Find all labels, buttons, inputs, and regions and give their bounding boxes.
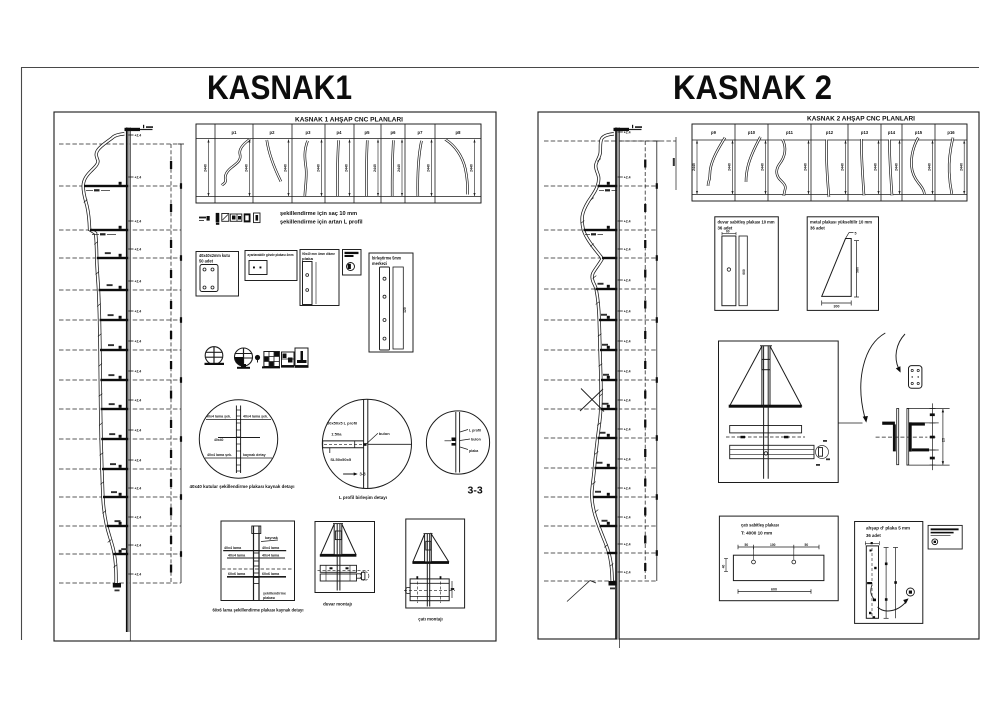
svg-text:600: 600 <box>742 269 746 275</box>
svg-text:2440: 2440 <box>761 163 765 171</box>
svg-text:+2.4: +2.4 <box>135 429 142 433</box>
svg-text:40x4 lama: 40x4 lama <box>228 553 246 557</box>
svg-text:40: 40 <box>722 565 726 569</box>
svg-text:kaynak detay: kaynak detay <box>243 453 266 457</box>
svg-text:+2.4: +2.4 <box>624 370 631 374</box>
svg-text:600: 600 <box>771 587 777 591</box>
svg-text:duvar montajı: duvar montajı <box>323 602 352 607</box>
svg-text:2440: 2440 <box>728 163 732 171</box>
svg-text:ayarlanabilir gövde plakası 4m: ayarlanabilir gövde plakası 4mm <box>248 252 294 257</box>
svg-text:KASNAK 2: KASNAK 2 <box>673 69 832 107</box>
svg-text:3-3: 3-3 <box>360 472 367 477</box>
svg-text:100: 100 <box>770 543 776 547</box>
svg-text:+2.4: +2.4 <box>624 571 631 575</box>
svg-text:60x6 lama: 60x6 lama <box>262 572 280 576</box>
svg-text:p14: p14 <box>888 130 896 135</box>
svg-text:p2: p2 <box>270 130 276 135</box>
svg-text:2440: 2440 <box>317 164 321 172</box>
svg-text:36 adet: 36 adet <box>866 533 881 538</box>
svg-text:plaka: plaka <box>469 449 479 453</box>
svg-text:p8: p8 <box>456 130 462 135</box>
svg-text:+2.4: +2.4 <box>135 176 142 180</box>
svg-text:+2.4: +2.4 <box>135 220 142 224</box>
svg-text:2440: 2440 <box>345 164 349 172</box>
svg-text:2440: 2440 <box>874 163 878 171</box>
svg-text:+2.4: +2.4 <box>624 176 631 180</box>
svg-text:L profil birleşim detayı: L profil birleşim detayı <box>339 495 387 500</box>
svg-text:+2.4: +2.4 <box>624 543 631 547</box>
svg-text:40x4 lama şek.: 40x4 lama şek. <box>243 415 268 419</box>
svg-text:40x4 lama şek.: 40x4 lama şek. <box>207 453 232 457</box>
svg-text:SL50x50x5: SL50x50x5 <box>330 457 351 462</box>
svg-text:36 adet: 36 adet <box>810 226 825 231</box>
svg-text:40x4 lama: 40x4 lama <box>262 546 280 550</box>
svg-text:şekillendirme için artan L pro: şekillendirme için artan L profil <box>280 219 363 225</box>
svg-text:p1: p1 <box>232 130 238 135</box>
svg-text:+2.4: +2.4 <box>624 487 631 491</box>
svg-text:KASNAK1: KASNAK1 <box>207 69 352 107</box>
svg-text:ahşap d' plaka 5 mm: ahşap d' plaka 5 mm <box>866 526 910 531</box>
svg-text:50x50x5 L profil: 50x50x5 L profil <box>327 421 357 426</box>
svg-text:kaynak: kaynak <box>265 536 279 540</box>
svg-text:2440: 2440 <box>373 164 377 172</box>
svg-text:+2.4: +2.4 <box>135 280 142 284</box>
svg-text:p15: p15 <box>915 130 923 135</box>
svg-text:p12: p12 <box>826 130 834 135</box>
svg-text:birleştirme 5mm: birleştirme 5mm <box>372 256 401 261</box>
svg-text:60x6 lama şekillendirme plakas: 60x6 lama şekillendirme plakası kaynak d… <box>213 608 304 613</box>
svg-text:çatı montajı: çatı montajı <box>418 617 442 622</box>
svg-text:L profil: L profil <box>469 428 481 432</box>
svg-text:120: 120 <box>403 307 407 313</box>
svg-text:3-3: 3-3 <box>468 485 483 497</box>
svg-text:+2.4: +2.4 <box>135 516 142 520</box>
svg-text:+2.4: +2.4 <box>135 248 142 252</box>
svg-text:300: 300 <box>834 304 840 308</box>
svg-text:+2.4: +2.4 <box>135 310 142 314</box>
svg-text:1:50a: 1:50a <box>331 432 342 437</box>
svg-text:T: 4000 10 mm: T: 4000 10 mm <box>741 531 772 536</box>
svg-text:40x40: 40x40 <box>214 438 224 442</box>
svg-text:60x6 lama: 60x6 lama <box>228 572 246 576</box>
svg-text:+2.4: +2.4 <box>624 340 631 344</box>
svg-text:p11: p11 <box>786 130 794 135</box>
svg-text:2440: 2440 <box>841 163 845 171</box>
svg-text:bulon: bulon <box>379 431 390 436</box>
svg-text:+2.4: +2.4 <box>624 220 631 224</box>
svg-text:2440: 2440 <box>692 163 696 171</box>
svg-text:50 adet: 50 adet <box>199 258 214 263</box>
svg-text:+2.4: +2.4 <box>135 459 142 463</box>
svg-text:+2.4: +2.4 <box>135 399 142 403</box>
svg-text:p7: p7 <box>418 130 424 135</box>
svg-text:+2.4: +2.4 <box>135 340 142 344</box>
svg-text:+2.4: +2.4 <box>624 310 631 314</box>
svg-text:580: 580 <box>855 267 859 273</box>
svg-text:+2.4: +2.4 <box>135 573 142 577</box>
svg-text:40x4 lama: 40x4 lama <box>262 553 280 557</box>
svg-text:p9: p9 <box>711 130 717 135</box>
svg-text:+2.4: +2.4 <box>624 428 631 432</box>
svg-text:KASNAK 2 AHŞAP CNC PLANLARI: KASNAK 2 AHŞAP CNC PLANLARI <box>807 116 915 123</box>
svg-text:40x40 kutular şekillendirme pl: 40x40 kutular şekillendirme plakası kayn… <box>190 484 295 489</box>
svg-text:+2.4: +2.4 <box>135 544 142 548</box>
svg-text:çatı sabitleş plakası: çatı sabitleş plakası <box>741 523 779 528</box>
svg-text:+2.4: +2.4 <box>135 134 142 138</box>
svg-text:2440: 2440 <box>959 163 963 171</box>
svg-text:p10: p10 <box>748 130 756 135</box>
svg-text:40x4 lama: 40x4 lama <box>224 546 242 550</box>
svg-text:+2.4: +2.4 <box>624 131 631 135</box>
svg-text:2440: 2440 <box>427 164 431 172</box>
svg-text:şekillendirme için saç 10 mm: şekillendirme için saç 10 mm <box>280 211 357 217</box>
svg-text:50: 50 <box>805 543 809 547</box>
svg-text:plaka: plaka <box>302 256 314 261</box>
svg-text:p4: p4 <box>337 130 343 135</box>
svg-text:+2.4: +2.4 <box>624 458 631 462</box>
svg-text:2440: 2440 <box>245 164 249 172</box>
svg-text:metal plakası yükseltilir 10 m: metal plakası yükseltilir 10 mm <box>810 220 872 225</box>
svg-text:2440: 2440 <box>928 163 932 171</box>
svg-text:KASNAK 1 AHŞAP CNC PLANLARI: KASNAK 1 AHŞAP CNC PLANLARI <box>295 117 403 124</box>
svg-text:+2.4: +2.4 <box>624 399 631 403</box>
svg-text:p16: p16 <box>947 130 955 135</box>
svg-text:p6: p6 <box>391 130 397 135</box>
svg-text:p5: p5 <box>365 130 371 135</box>
svg-text:2440: 2440 <box>284 164 288 172</box>
svg-text:p3: p3 <box>306 130 312 135</box>
svg-text:+2.4: +2.4 <box>624 279 631 283</box>
svg-text:2440: 2440 <box>397 164 401 172</box>
svg-text:50: 50 <box>745 543 749 547</box>
svg-text:merkezi: merkezi <box>372 261 387 266</box>
svg-text:+2.4: +2.4 <box>624 516 631 520</box>
svg-text:2440: 2440 <box>804 163 808 171</box>
svg-text:+2.4: +2.4 <box>135 487 142 491</box>
svg-text:2440: 2440 <box>470 164 474 172</box>
svg-text:2440: 2440 <box>895 163 899 171</box>
svg-text:40x4 lama şek.: 40x4 lama şek. <box>206 415 231 419</box>
svg-text:p13: p13 <box>861 130 869 135</box>
svg-text:bulon: bulon <box>471 438 481 442</box>
svg-text:plakası: plakası <box>263 596 275 600</box>
svg-text:25: 25 <box>942 438 946 442</box>
svg-text:2440: 2440 <box>204 164 208 172</box>
svg-text:duvar sabitleş plakası 10 mm: duvar sabitleş plakası 10 mm <box>718 220 775 225</box>
svg-text:5: 5 <box>855 231 857 235</box>
svg-text:+2.4: +2.4 <box>624 248 631 252</box>
svg-text:+2.4: +2.4 <box>135 370 142 374</box>
svg-text:60: 60 <box>726 229 730 233</box>
